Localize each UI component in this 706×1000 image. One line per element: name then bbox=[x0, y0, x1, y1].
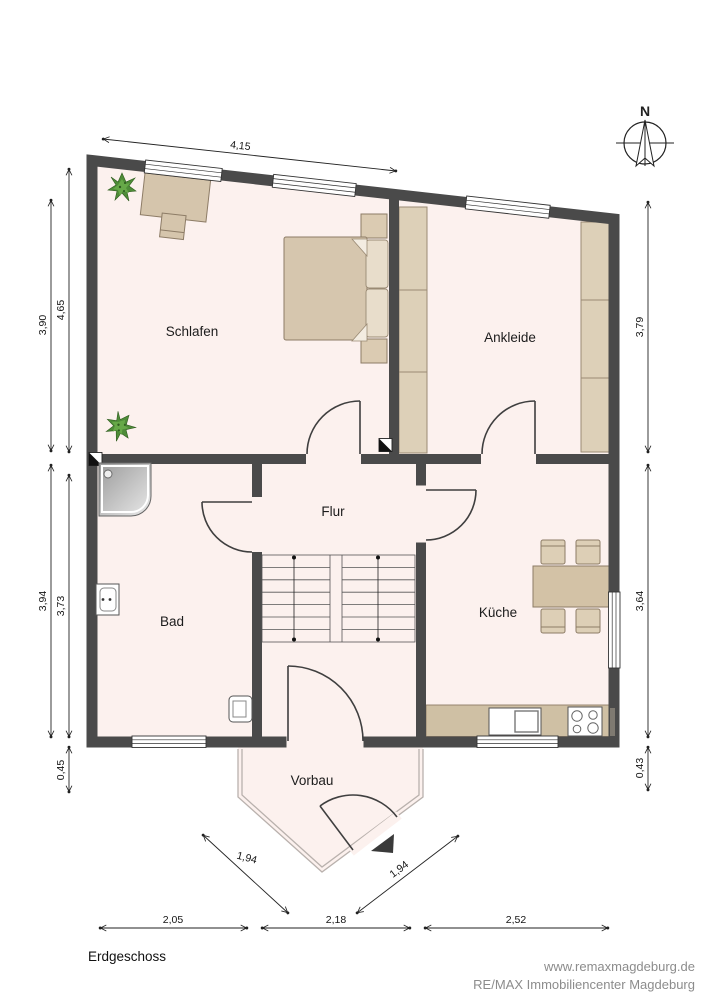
window-kueche-bottom bbox=[477, 736, 558, 748]
window-kueche-right bbox=[609, 592, 621, 668]
room-label-flur: Flur bbox=[321, 504, 345, 519]
pillow-bottom bbox=[366, 289, 388, 337]
porch-floor bbox=[238, 744, 423, 872]
room-label-vorbau: Vorbau bbox=[291, 773, 334, 788]
pillow-top bbox=[366, 240, 388, 288]
nightstand-bottom bbox=[361, 339, 387, 363]
floor-title: Erdgeschoss bbox=[88, 949, 166, 964]
dim-left-inner-upper: 4,65 bbox=[55, 300, 67, 321]
dim-bottom-left: 2,05 bbox=[163, 914, 184, 926]
dim-left-outer-upper: 3,90 bbox=[37, 315, 49, 336]
footer-company: RE/MAX Immobiliencenter Magdeburg bbox=[473, 977, 695, 992]
floorplan-drawing: Schlafen Ankleide Flur Bad Küche Vorbau … bbox=[0, 0, 706, 1000]
footer-website: www.remaxmagdeburg.de bbox=[543, 959, 695, 974]
room-label-kueche: Küche bbox=[479, 605, 517, 620]
dim-top-width: 4,15 bbox=[230, 139, 252, 153]
bathroom-sink bbox=[96, 584, 119, 615]
bed-blanket bbox=[284, 237, 367, 340]
room-label-ankleide: Ankleide bbox=[484, 330, 536, 345]
dim-porch-left: 1,94 bbox=[235, 850, 258, 867]
compass-north-label: N bbox=[640, 103, 650, 119]
dim-right-middle: 3,64 bbox=[634, 591, 646, 612]
dining-table bbox=[533, 566, 609, 607]
dim-bottom-right: 2,52 bbox=[506, 914, 527, 926]
floorplan-page: Schlafen Ankleide Flur Bad Küche Vorbau … bbox=[0, 0, 706, 1000]
room-label-bad: Bad bbox=[160, 614, 184, 629]
desk-chair bbox=[160, 213, 187, 240]
nightstand-top bbox=[361, 214, 387, 238]
toilet bbox=[229, 696, 252, 722]
dim-left-inner-lower: 3,73 bbox=[55, 596, 67, 617]
watermark-strip bbox=[610, 708, 615, 736]
dim-right-bottom: 0,43 bbox=[634, 758, 646, 779]
dim-left-outer-lower: 3,94 bbox=[37, 591, 49, 612]
kitchen-counter bbox=[426, 705, 609, 737]
shower bbox=[99, 463, 151, 516]
kitchen-sink bbox=[489, 708, 541, 735]
window-bad-bottom bbox=[132, 736, 206, 748]
compass: N bbox=[616, 103, 674, 166]
room-label-schlafen: Schlafen bbox=[166, 324, 219, 339]
chimney-right bbox=[379, 439, 392, 452]
dim-bottom-center: 2,18 bbox=[326, 914, 347, 926]
dim-left-bottom: 0,45 bbox=[55, 760, 67, 781]
dim-right-upper: 3,79 bbox=[634, 317, 646, 338]
dim-porch-right: 1,94 bbox=[387, 859, 411, 881]
stove bbox=[568, 707, 602, 736]
